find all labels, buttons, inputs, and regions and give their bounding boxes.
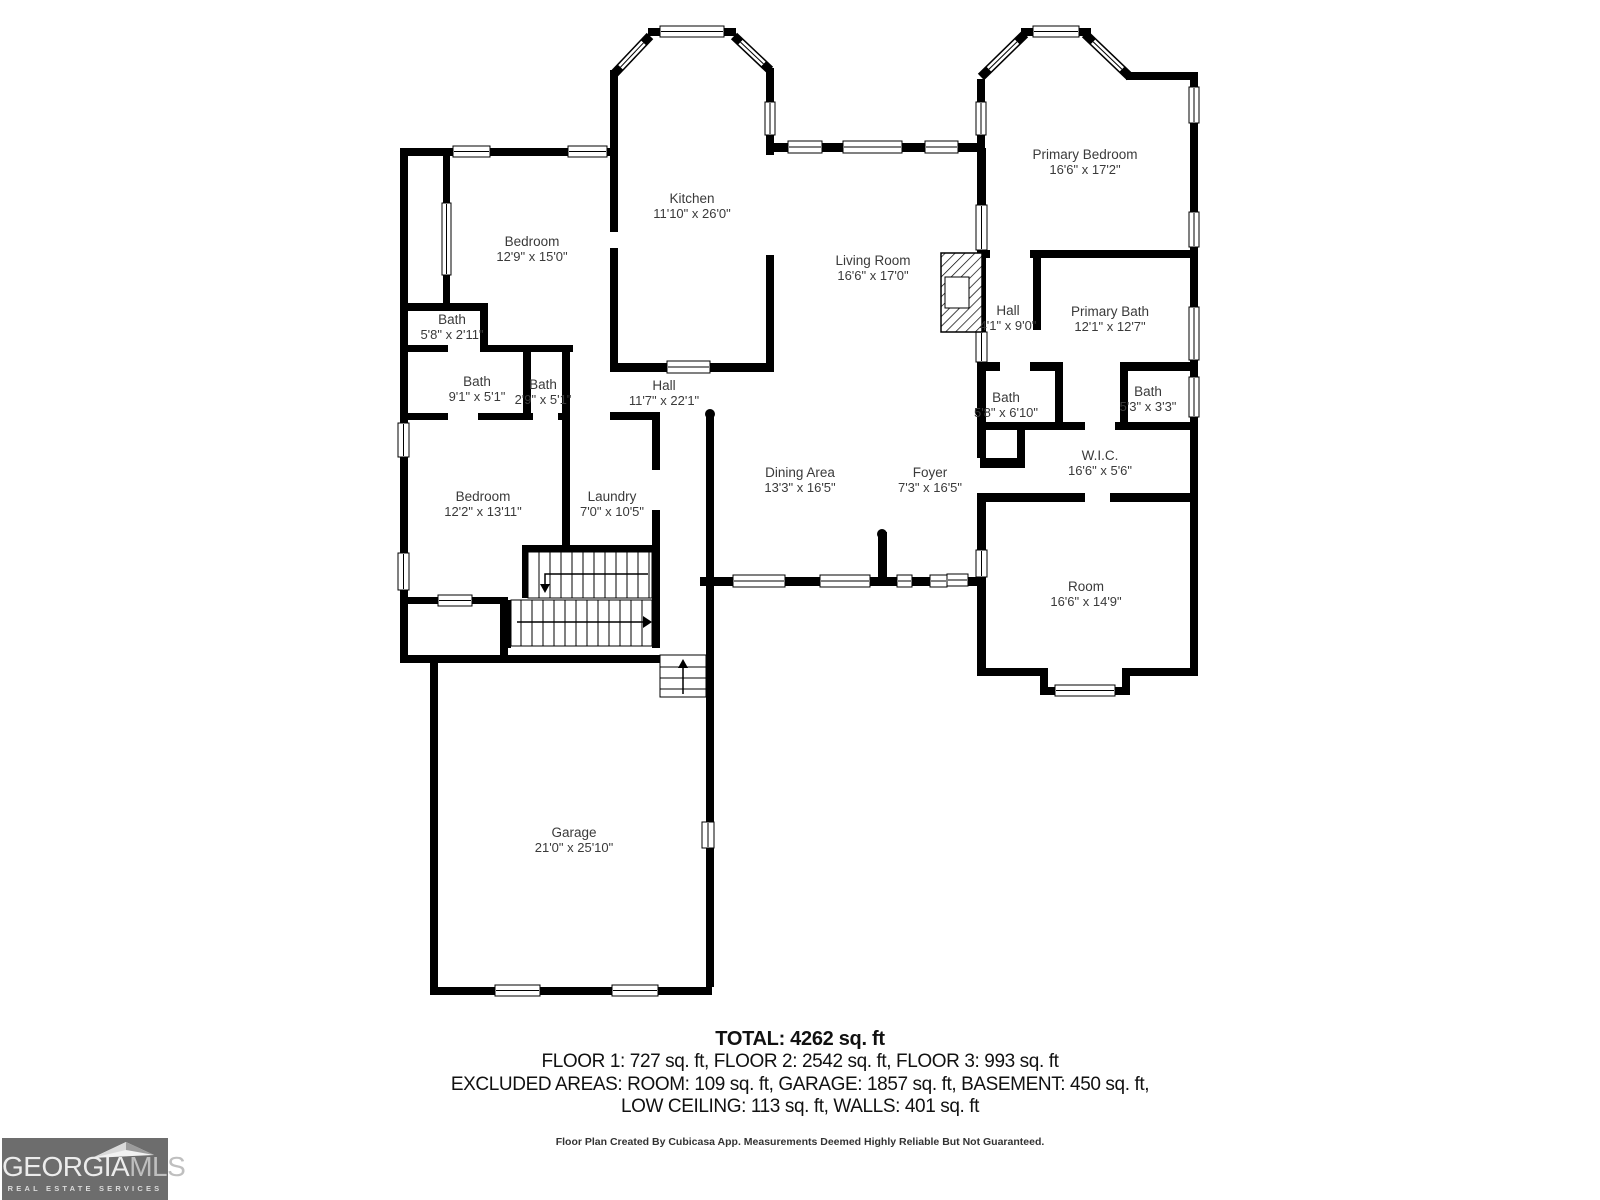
room-name: Bath [1120,384,1177,399]
room-name: Bath [974,390,1038,405]
room-dims: 5'8" x 2'11" [420,327,483,342]
room-label-bedroom-lower: Bedroom 12'2" x 13'11" [444,489,522,519]
logo-tagline: REAL ESTATE SERVICES [2,1184,168,1193]
room-label-bath-e: Bath 5'3" x 3'3" [1120,384,1177,414]
room-name: Bedroom [444,489,522,504]
room-label-bedroom-upper: Bedroom 12'9" x 15'0" [496,234,567,264]
georgia-mls-logo: GEORGIAMLS REAL ESTATE SERVICES [2,1138,168,1200]
logo-brand-secondary: MLS [129,1151,185,1182]
room-dims: 11'7" x 22'1" [629,393,699,408]
room-name: Bath [449,374,506,389]
room-name: Bedroom [496,234,567,249]
bay-window-walls [614,34,1130,77]
excluded-areas-2: LOW CEILING: 113 sq. ft, WALLS: 401 sq. … [0,1096,1600,1119]
room-label-room: Room 16'6" x 14'9" [1050,579,1121,609]
room-label-laundry: Laundry 7'0" x 10'5" [580,489,644,519]
room-dims: 2'9" x 5'1" [515,392,572,407]
room-dims: 7'0" x 10'5" [580,504,644,519]
area-summary: TOTAL: 4262 sq. ft FLOOR 1: 727 sq. ft, … [0,1028,1600,1119]
room-name: Laundry [580,489,644,504]
disclaimer-text: Floor Plan Created By Cubicasa App. Meas… [0,1136,1600,1148]
room-dims: 5'3" x 3'3" [1120,399,1177,414]
room-label-bath-d: Bath 5'8" x 6'10" [974,390,1038,420]
room-name: Dining Area [764,465,835,480]
excluded-areas-1: EXCLUDED AREAS: ROOM: 109 sq. ft, GARAGE… [0,1074,1600,1097]
room-dims: 16'6" x 17'0" [835,268,910,283]
floor-areas: FLOOR 1: 727 sq. ft, FLOOR 2: 2542 sq. f… [0,1051,1600,1074]
room-label-living-room: Living Room 16'6" x 17'0" [835,253,910,283]
room-dims: 16'6" x 5'6" [1068,463,1132,478]
fireplace-icon [941,253,982,332]
room-name: Hall [629,378,699,393]
room-label-kitchen: Kitchen 11'10" x 26'0" [653,191,731,221]
room-label-dining-area: Dining Area 13'3" x 16'5" [764,465,835,495]
room-dims: 12'9" x 15'0" [496,249,567,264]
room-name: Garage [535,825,614,840]
room-name: Room [1050,579,1121,594]
room-name: Bath [515,377,572,392]
room-label-bath-b: Bath 9'1" x 5'1" [449,374,506,404]
room-name: Primary Bedroom [1032,147,1137,162]
room-name: Hall [980,303,1037,318]
stairs [511,552,652,646]
room-label-primary-bedroom: Primary Bedroom 16'6" x 17'2" [1032,147,1137,177]
floor-plan-drawing [0,0,1600,1200]
room-label-wic: W.I.C. 16'6" x 5'6" [1068,448,1132,478]
room-label-bath-a: Bath 5'8" x 2'11" [420,312,483,342]
room-name: Kitchen [653,191,731,206]
total-area: TOTAL: 4262 sq. ft [0,1028,1600,1051]
entry-steps [660,655,706,697]
floor-plan-page: Kitchen 11'10" x 26'0" Bedroom 12'9" x 1… [0,0,1600,1200]
room-name: W.I.C. [1068,448,1132,463]
room-name: Bath [420,312,483,327]
room-label-bath-c: Bath 2'9" x 5'1" [515,377,572,407]
room-dims: 4'1" x 9'0" [980,318,1037,333]
room-label-hall-upper: Hall 4'1" x 9'0" [980,303,1037,333]
room-dims: 16'6" x 17'2" [1032,162,1137,177]
room-label-garage: Garage 21'0" x 25'10" [535,825,614,855]
room-label-primary-bath: Primary Bath 12'1" x 12'7" [1071,304,1149,334]
room-dims: 21'0" x 25'10" [535,840,614,855]
room-dims: 11'10" x 26'0" [653,206,731,221]
room-dims: 12'2" x 13'11" [444,504,522,519]
room-dims: 16'6" x 14'9" [1050,594,1121,609]
room-name: Foyer [898,465,962,480]
logo-brand-primary: GEORGIA [2,1151,129,1182]
room-dims: 7'3" x 16'5" [898,480,962,495]
room-dims: 5'8" x 6'10" [974,405,1038,420]
logo-brand: GEORGIAMLS [2,1152,168,1182]
room-name: Primary Bath [1071,304,1149,319]
room-dims: 9'1" x 5'1" [449,389,506,404]
room-label-foyer: Foyer 7'3" x 16'5" [898,465,962,495]
room-label-hall-main: Hall 11'7" x 22'1" [629,378,699,408]
room-name: Living Room [835,253,910,268]
room-dims: 12'1" x 12'7" [1071,319,1149,334]
room-dims: 13'3" x 16'5" [764,480,835,495]
